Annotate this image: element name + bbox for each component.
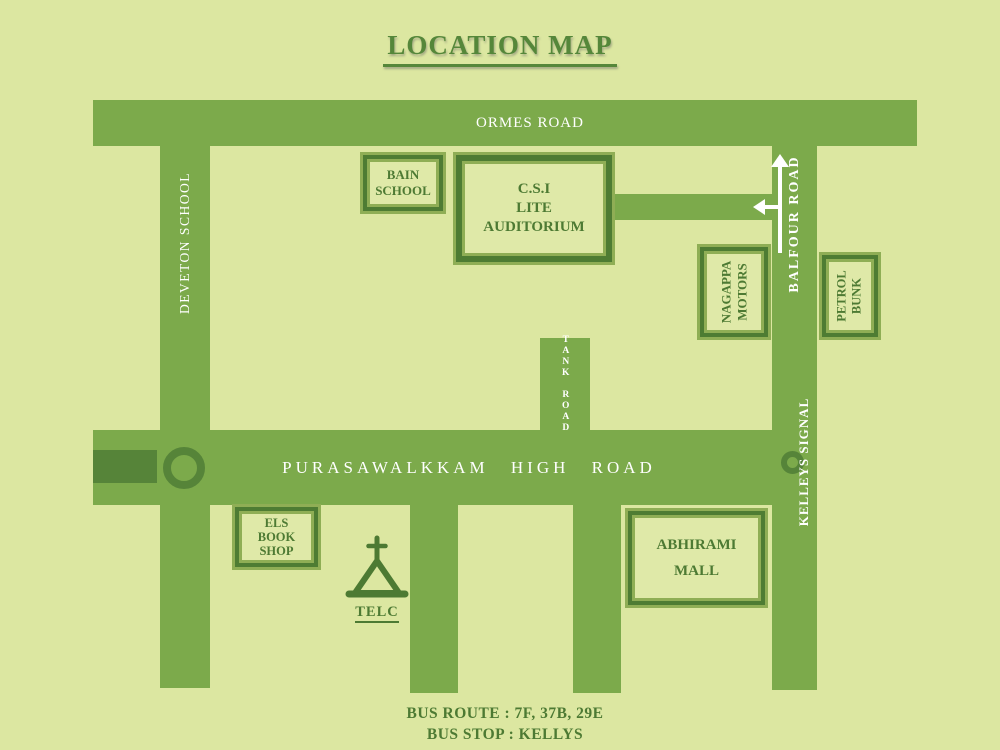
poi-bain-school: BAIN SCHOOL xyxy=(363,155,443,211)
poi-label-line: SHOP xyxy=(259,544,293,558)
road-label-purasawalkkam: PURASAWALKKAM HIGH ROAD xyxy=(93,430,817,505)
arrow-left-icon xyxy=(753,199,765,215)
arrow-up-line xyxy=(778,167,782,253)
poi-label-line: BAIN xyxy=(387,167,420,183)
poi-label-line: MALL xyxy=(674,558,719,584)
poi-label-line: BOOK xyxy=(258,530,296,544)
poi-label-line: C.S.I xyxy=(518,180,551,199)
footer-bus-stop: BUS STOP : KELLYS xyxy=(0,724,1000,745)
telc-label: TELC xyxy=(355,604,399,623)
poi-label-line: BUNK xyxy=(850,270,865,321)
poi-nagappa-motors: NAGAPPA MOTORS xyxy=(700,247,768,337)
road-south-2 xyxy=(573,505,621,693)
poi-label-line: ELS xyxy=(265,516,289,530)
road-south-1 xyxy=(410,505,458,693)
page-title: LOCATION MAP xyxy=(383,30,616,67)
footer-bus-route: BUS ROUTE : 7F, 37B, 29E xyxy=(0,703,1000,724)
poi-els-book-shop: ELS BOOK SHOP xyxy=(235,507,318,567)
poi-label-line: SCHOOL xyxy=(375,183,431,199)
footer-bus-info: BUS ROUTE : 7F, 37B, 29E BUS STOP : KELL… xyxy=(0,703,1000,745)
location-map: LOCATION MAP ORMES ROAD DEVETON SCHOOL B… xyxy=(0,0,1000,750)
poi-label-line: PETROL xyxy=(835,270,850,321)
road-label-balfour: BALFOUR ROAD xyxy=(787,144,803,304)
page-title-wrap: LOCATION MAP xyxy=(0,30,1000,67)
poi-abhirami-mall: ABHIRAMI MALL xyxy=(628,511,765,605)
poi-label-line: MOTORS xyxy=(734,261,750,324)
arrow-left-line xyxy=(765,205,780,209)
poi-telc: TELC xyxy=(340,603,414,621)
road-label-deveton: DEVETON SCHOOL xyxy=(177,143,193,343)
church-icon xyxy=(340,535,414,603)
poi-csi-lite-auditorium: C.S.I LITE AUDITORIUM xyxy=(456,155,612,262)
poi-label-line: AUDITORIUM xyxy=(483,218,584,237)
poi-label-line: ABHIRAMI xyxy=(656,532,736,558)
road-label-ormes: ORMES ROAD xyxy=(93,100,917,146)
poi-label-line: LITE xyxy=(516,199,552,218)
road-csi-connector xyxy=(610,194,772,220)
poi-label-line: NAGAPPA xyxy=(718,261,734,324)
poi-petrol-bunk: PETROL BUNK xyxy=(822,255,878,337)
road-label-tank: TANK ROAD xyxy=(540,338,590,430)
